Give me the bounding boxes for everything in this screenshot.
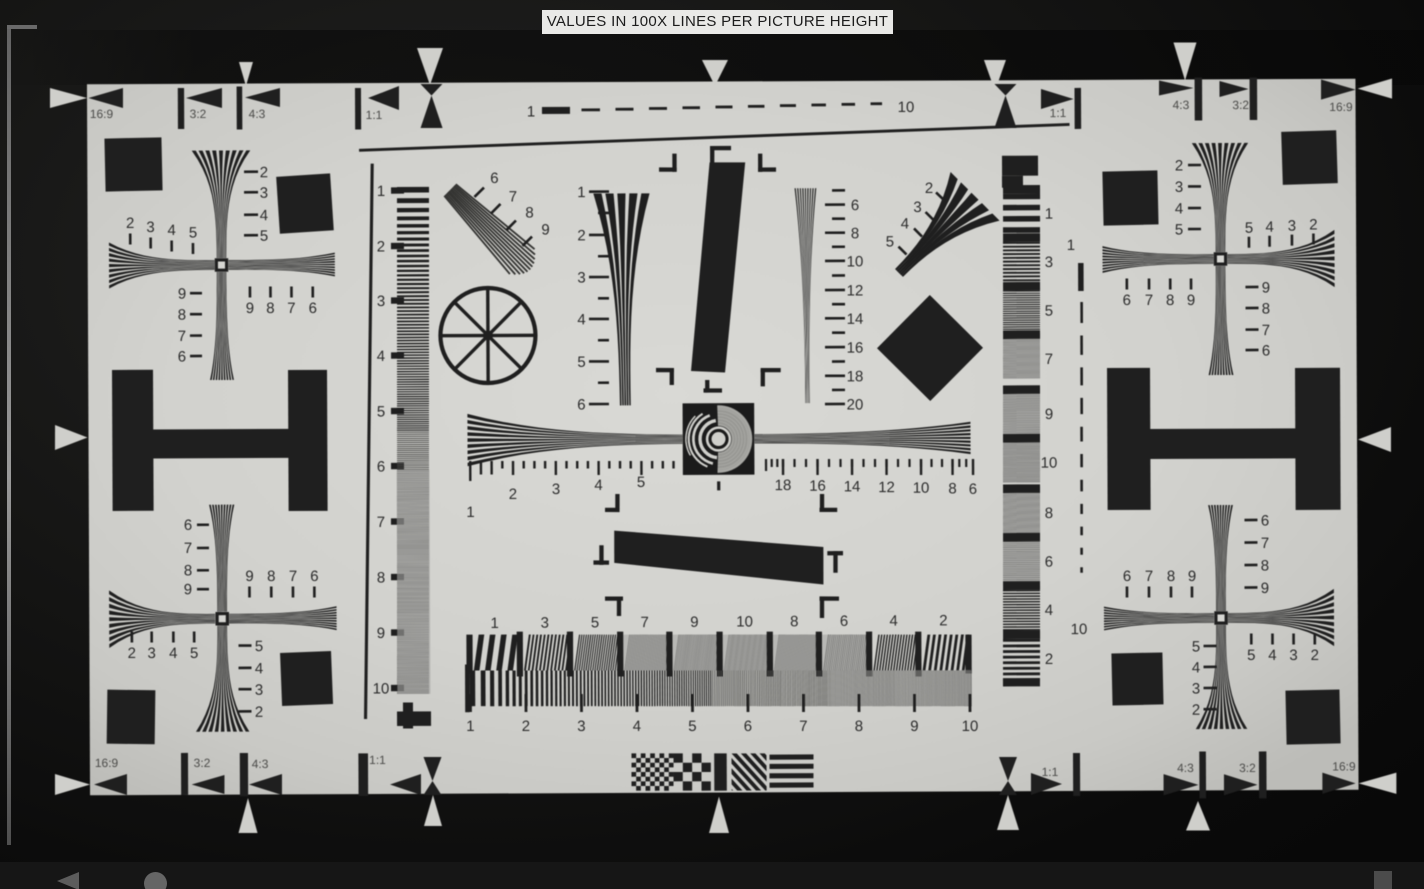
svg-text:4: 4 <box>1265 219 1273 236</box>
svg-text:7: 7 <box>1045 351 1053 368</box>
svg-text:7: 7 <box>1262 322 1270 339</box>
svg-text:3: 3 <box>577 269 585 286</box>
svg-text:5: 5 <box>190 645 198 662</box>
svg-text:1: 1 <box>1067 237 1075 254</box>
svg-text:3: 3 <box>1288 218 1296 235</box>
svg-text:5: 5 <box>1245 220 1253 237</box>
svg-text:4: 4 <box>633 718 641 735</box>
svg-text:18: 18 <box>847 368 864 385</box>
svg-text:3: 3 <box>255 682 263 699</box>
svg-text:3: 3 <box>147 645 155 662</box>
svg-text:2: 2 <box>260 164 268 181</box>
svg-text:3: 3 <box>146 219 154 236</box>
svg-text:5: 5 <box>255 638 263 655</box>
svg-text:9: 9 <box>245 568 253 585</box>
svg-text:8: 8 <box>178 307 186 324</box>
svg-text:5: 5 <box>591 614 599 631</box>
svg-text:4: 4 <box>1175 200 1183 217</box>
svg-text:8: 8 <box>1045 505 1053 522</box>
svg-text:10: 10 <box>898 99 915 116</box>
svg-text:2: 2 <box>1175 157 1183 174</box>
svg-text:2: 2 <box>1311 647 1319 664</box>
svg-text:3: 3 <box>1192 681 1200 698</box>
svg-text:10: 10 <box>962 718 979 735</box>
svg-text:2: 2 <box>1192 702 1200 719</box>
svg-text:9: 9 <box>541 221 549 238</box>
svg-text:9: 9 <box>690 614 698 631</box>
svg-text:10: 10 <box>847 253 864 270</box>
svg-text:8: 8 <box>525 205 533 222</box>
svg-text:2: 2 <box>377 238 385 255</box>
svg-text:7: 7 <box>641 614 649 631</box>
svg-text:12: 12 <box>878 479 895 496</box>
svg-text:3: 3 <box>1289 647 1297 664</box>
svg-text:10: 10 <box>1041 455 1058 472</box>
svg-text:3:2: 3:2 <box>1239 761 1256 775</box>
svg-text:3: 3 <box>552 481 560 498</box>
svg-text:1: 1 <box>577 184 585 201</box>
svg-text:1: 1 <box>527 104 535 121</box>
svg-text:10: 10 <box>373 680 390 697</box>
svg-text:9: 9 <box>377 625 385 642</box>
svg-text:8: 8 <box>377 569 385 586</box>
svg-text:4: 4 <box>577 311 585 328</box>
svg-text:2: 2 <box>1045 651 1053 668</box>
svg-text:8: 8 <box>851 225 859 242</box>
svg-text:18: 18 <box>775 477 792 494</box>
svg-text:5: 5 <box>377 403 385 420</box>
svg-text:6: 6 <box>1261 513 1269 530</box>
svg-text:10: 10 <box>736 613 753 630</box>
svg-text:6: 6 <box>969 481 977 498</box>
svg-text:7: 7 <box>1261 535 1269 552</box>
svg-text:16:9: 16:9 <box>95 756 119 770</box>
svg-text:1:1: 1:1 <box>369 753 386 767</box>
svg-text:5: 5 <box>189 224 197 241</box>
svg-text:7: 7 <box>1145 568 1153 585</box>
svg-text:1: 1 <box>1045 206 1053 223</box>
svg-text:3:2: 3:2 <box>194 756 211 770</box>
svg-text:4:3: 4:3 <box>249 107 266 121</box>
svg-text:4: 4 <box>260 207 268 224</box>
svg-text:8: 8 <box>1262 301 1270 318</box>
svg-text:2: 2 <box>126 215 134 232</box>
svg-text:9: 9 <box>184 581 192 598</box>
svg-text:7: 7 <box>377 514 385 531</box>
svg-text:16:9: 16:9 <box>1329 100 1353 114</box>
svg-text:1: 1 <box>490 615 498 632</box>
svg-text:2: 2 <box>925 180 933 197</box>
svg-text:9: 9 <box>1187 292 1195 309</box>
svg-text:1:1: 1:1 <box>1042 765 1059 779</box>
svg-text:6: 6 <box>184 517 192 534</box>
svg-text:16: 16 <box>847 340 864 357</box>
svg-text:4: 4 <box>255 660 263 677</box>
svg-text:5: 5 <box>577 354 585 371</box>
svg-text:5: 5 <box>1175 221 1183 238</box>
svg-text:6: 6 <box>577 396 585 413</box>
svg-text:2: 2 <box>522 718 530 735</box>
svg-text:6: 6 <box>377 458 385 475</box>
svg-text:6: 6 <box>851 197 859 214</box>
svg-text:9: 9 <box>178 286 186 303</box>
svg-text:4: 4 <box>1192 659 1200 676</box>
svg-text:1:1: 1:1 <box>1050 106 1067 120</box>
svg-text:16:9: 16:9 <box>1332 759 1356 773</box>
svg-text:5: 5 <box>1192 639 1200 656</box>
svg-text:4:3: 4:3 <box>1177 761 1194 775</box>
svg-text:6: 6 <box>1045 554 1053 571</box>
svg-text:7: 7 <box>1145 292 1153 309</box>
svg-text:2: 2 <box>255 704 263 721</box>
svg-text:9: 9 <box>1262 280 1270 297</box>
svg-text:5: 5 <box>637 474 645 491</box>
svg-text:3:2: 3:2 <box>190 107 207 121</box>
svg-text:4: 4 <box>169 645 177 662</box>
svg-text:3: 3 <box>377 293 385 310</box>
svg-text:16:9: 16:9 <box>90 107 114 121</box>
svg-text:4: 4 <box>1045 602 1053 619</box>
svg-text:8: 8 <box>266 300 274 317</box>
svg-text:14: 14 <box>844 478 861 495</box>
svg-text:6: 6 <box>744 718 752 735</box>
svg-text:8: 8 <box>790 613 798 630</box>
svg-text:2: 2 <box>509 486 517 503</box>
svg-text:9: 9 <box>1261 580 1269 597</box>
svg-text:1: 1 <box>377 183 385 200</box>
svg-text:5: 5 <box>1045 303 1053 320</box>
svg-text:6: 6 <box>309 300 317 317</box>
svg-text:8: 8 <box>1261 558 1269 575</box>
svg-text:20: 20 <box>847 396 864 413</box>
svg-text:10: 10 <box>1071 621 1088 638</box>
svg-text:8: 8 <box>855 718 863 735</box>
svg-text:7: 7 <box>178 328 186 345</box>
svg-text:9: 9 <box>1188 568 1196 585</box>
svg-text:5: 5 <box>886 233 894 250</box>
svg-text:4: 4 <box>889 613 897 630</box>
svg-text:5: 5 <box>1247 647 1255 664</box>
svg-text:8: 8 <box>948 480 956 497</box>
svg-text:2: 2 <box>1309 216 1317 233</box>
svg-text:6: 6 <box>1262 343 1270 360</box>
svg-text:6: 6 <box>840 613 848 630</box>
svg-text:8: 8 <box>1167 568 1175 585</box>
svg-text:3: 3 <box>541 615 549 632</box>
svg-text:4:3: 4:3 <box>252 757 269 771</box>
svg-text:2: 2 <box>577 227 585 244</box>
svg-text:2: 2 <box>128 645 136 662</box>
svg-text:7: 7 <box>509 188 517 205</box>
svg-text:1: 1 <box>466 504 474 521</box>
svg-text:1: 1 <box>466 718 474 735</box>
svg-text:9: 9 <box>246 300 254 317</box>
svg-text:4: 4 <box>594 477 602 494</box>
svg-text:4: 4 <box>167 222 175 239</box>
svg-text:7: 7 <box>799 718 807 735</box>
svg-text:12: 12 <box>847 282 864 299</box>
svg-text:7: 7 <box>184 540 192 557</box>
svg-text:3: 3 <box>1045 254 1053 271</box>
svg-text:8: 8 <box>267 568 275 585</box>
svg-text:3:2: 3:2 <box>1232 98 1249 112</box>
svg-text:8: 8 <box>1166 292 1174 309</box>
svg-text:4: 4 <box>1268 647 1276 664</box>
svg-text:5: 5 <box>260 228 268 245</box>
svg-text:6: 6 <box>310 568 318 585</box>
svg-text:5: 5 <box>688 718 696 735</box>
svg-text:3: 3 <box>577 718 585 735</box>
svg-text:6: 6 <box>1123 568 1131 585</box>
svg-text:3: 3 <box>913 199 921 216</box>
svg-text:6: 6 <box>1123 292 1131 309</box>
svg-text:4: 4 <box>377 348 385 365</box>
svg-text:16: 16 <box>809 478 826 495</box>
svg-text:2: 2 <box>939 612 947 629</box>
svg-text:8: 8 <box>184 562 192 579</box>
svg-text:7: 7 <box>289 568 297 585</box>
svg-text:1:1: 1:1 <box>366 108 383 122</box>
svg-text:6: 6 <box>178 348 186 365</box>
svg-text:3: 3 <box>260 185 268 202</box>
svg-text:6: 6 <box>490 170 498 187</box>
svg-text:3: 3 <box>1175 179 1183 196</box>
svg-text:9: 9 <box>1045 406 1053 423</box>
svg-text:10: 10 <box>913 480 930 497</box>
svg-text:9: 9 <box>910 718 918 735</box>
svg-text:14: 14 <box>847 311 864 328</box>
svg-text:4:3: 4:3 <box>1173 98 1190 112</box>
svg-text:7: 7 <box>287 300 295 317</box>
svg-text:4: 4 <box>901 215 909 232</box>
